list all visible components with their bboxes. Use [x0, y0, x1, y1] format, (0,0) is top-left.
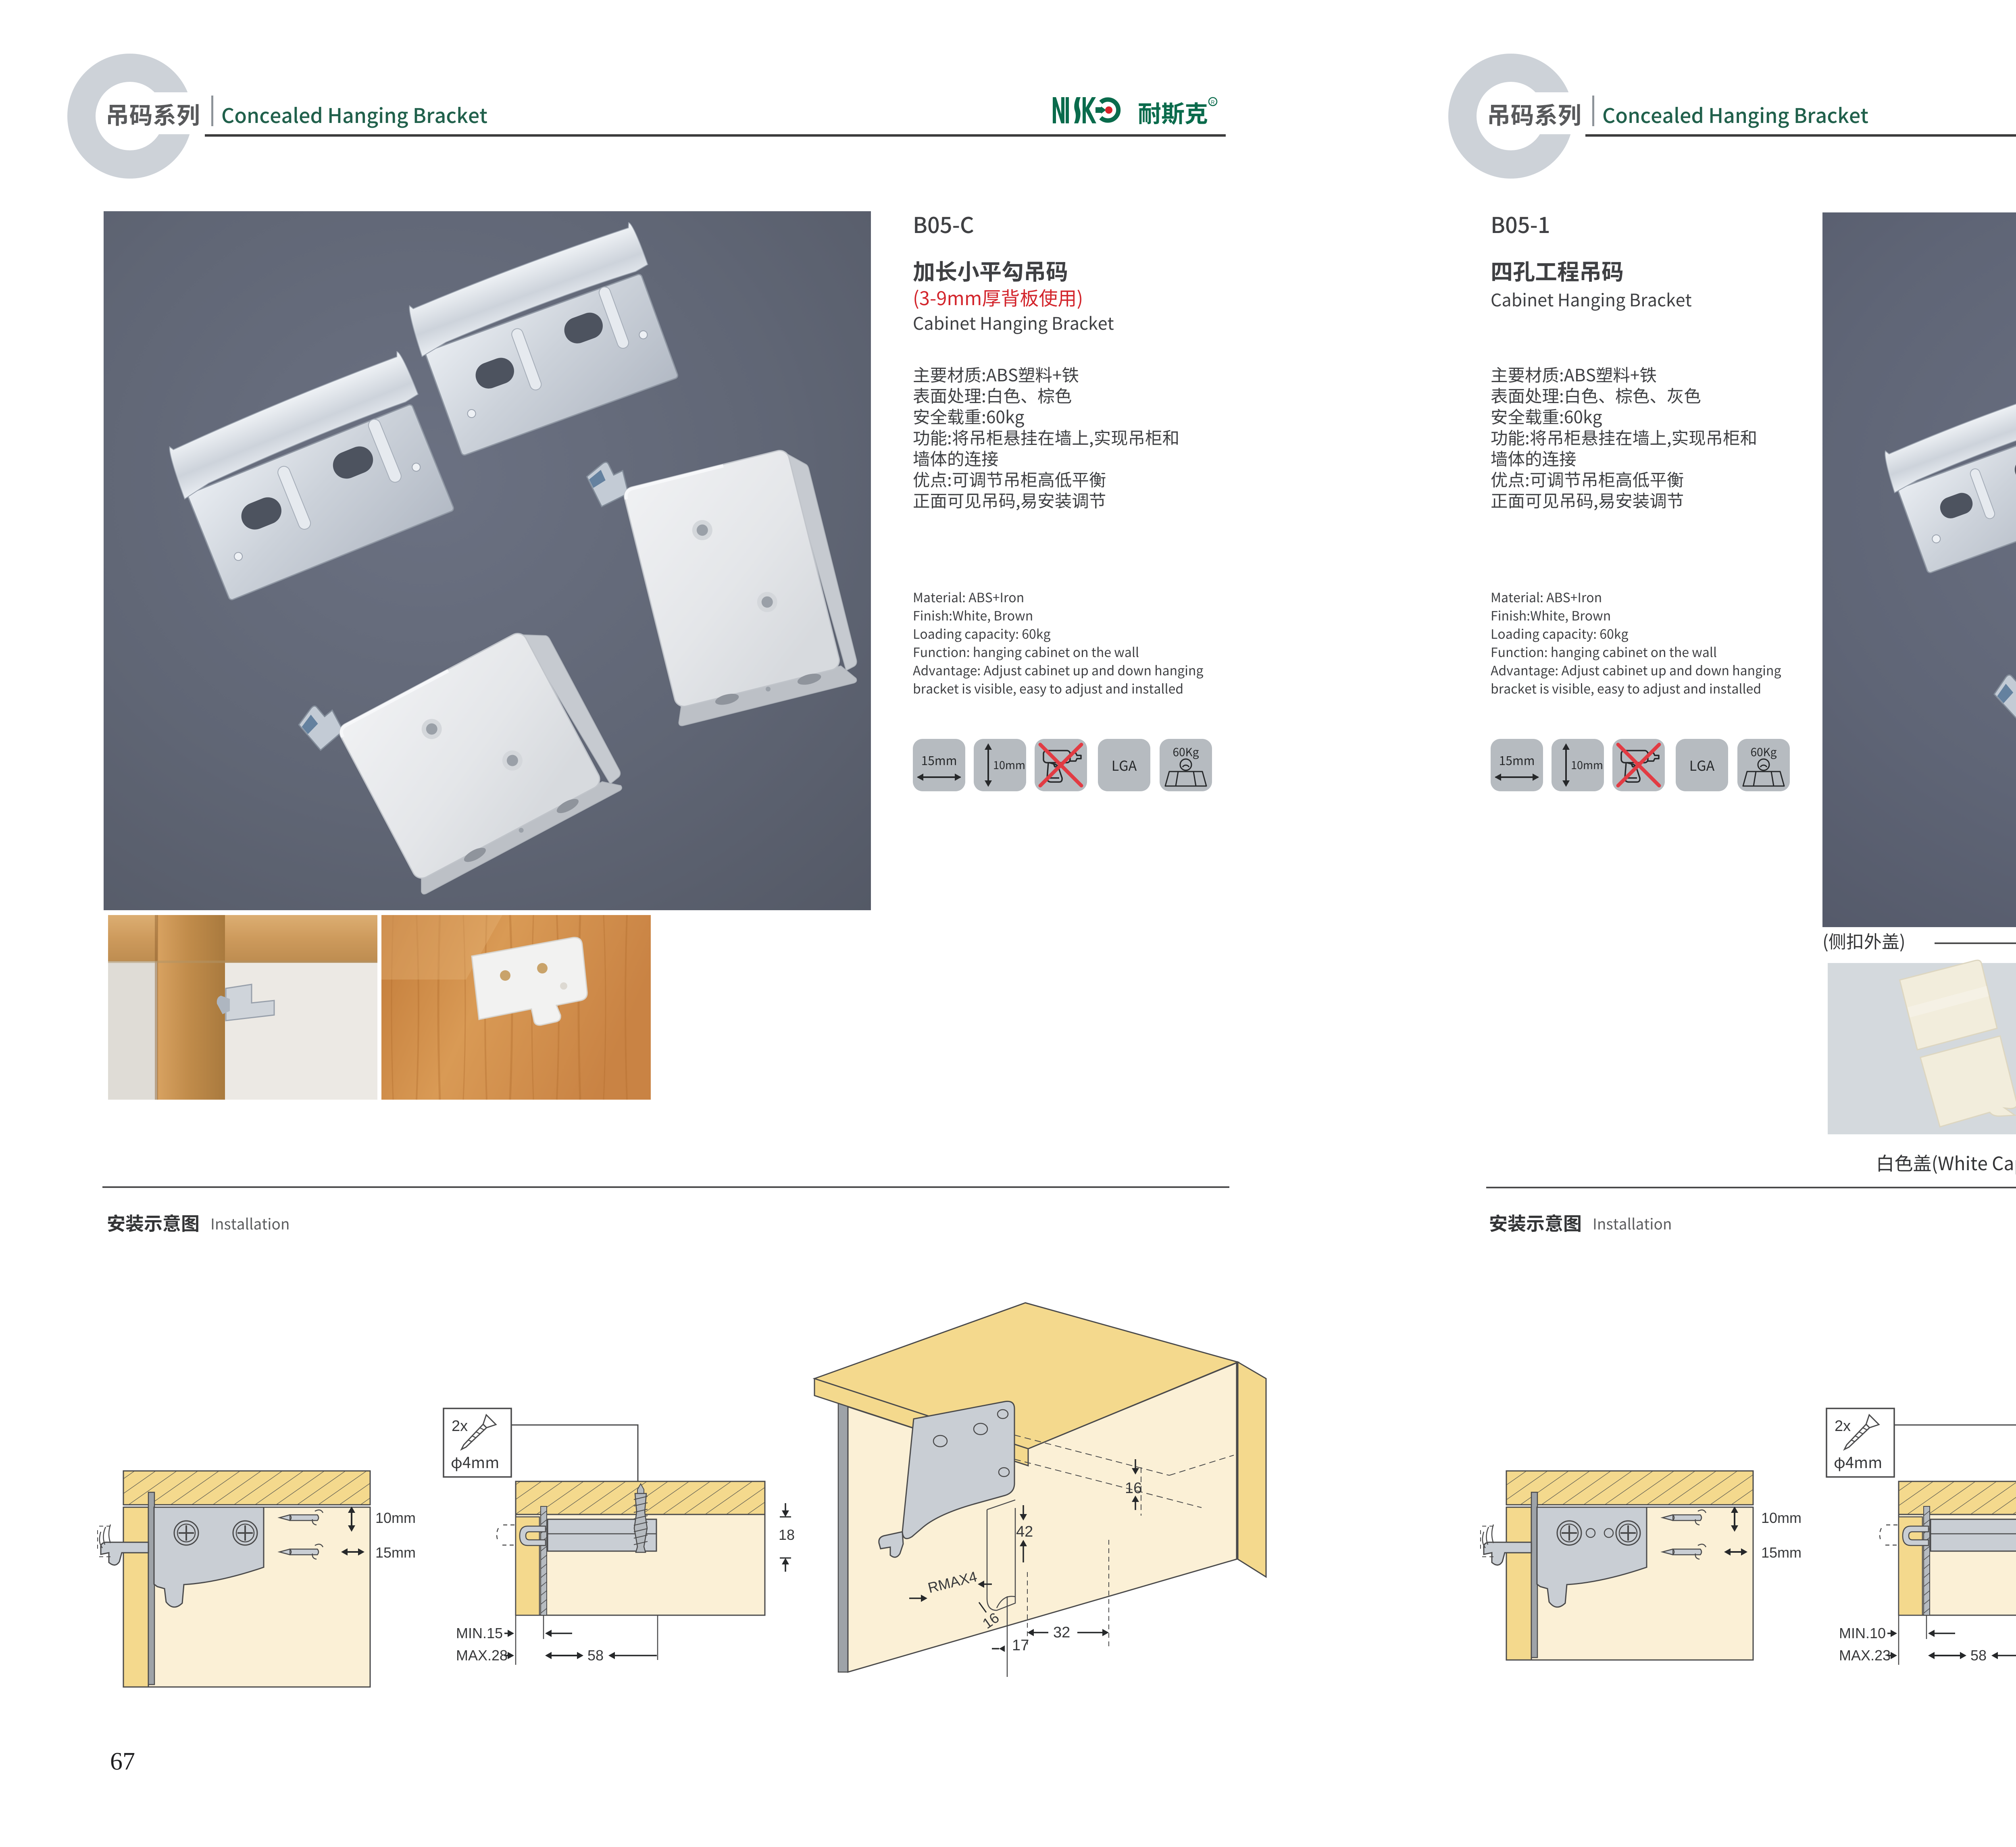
svg-text:32: 32	[1053, 1624, 1070, 1641]
svg-text:R: R	[1211, 99, 1214, 105]
svg-text:15mm: 15mm	[1761, 1544, 1801, 1561]
svg-text:17: 17	[1012, 1637, 1029, 1654]
svg-text:MAX.23: MAX.23	[1839, 1647, 1891, 1664]
svg-text:15mm: 15mm	[375, 1544, 416, 1561]
svg-text:18: 18	[779, 1527, 795, 1543]
svg-text:67: 67	[110, 1748, 135, 1775]
svg-text:58: 58	[587, 1647, 604, 1664]
svg-text:42: 42	[1016, 1523, 1033, 1540]
svg-text:2x: 2x	[1835, 1418, 1851, 1435]
svg-text:MIN.10: MIN.10	[1839, 1625, 1886, 1641]
svg-text:58: 58	[1970, 1647, 1987, 1664]
svg-text:10mm: 10mm	[375, 1510, 416, 1526]
svg-text:10mm: 10mm	[1761, 1510, 1801, 1526]
svg-text:2x: 2x	[452, 1418, 468, 1435]
svg-text:16: 16	[1125, 1480, 1142, 1497]
svg-text:MAX.28: MAX.28	[456, 1647, 508, 1664]
svg-text:MIN.15: MIN.15	[456, 1625, 503, 1641]
